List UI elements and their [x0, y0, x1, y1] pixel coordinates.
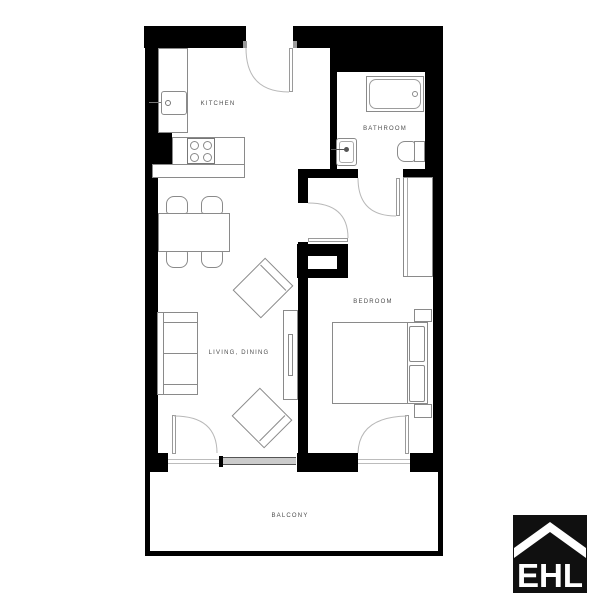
bedroom-balcony-door-arc [358, 416, 407, 453]
wall-bedroom-partition-upper [298, 178, 308, 203]
room-label-bedroom: BEDROOM [353, 299, 392, 305]
pillow [409, 326, 425, 362]
kitchen-counter-front [152, 164, 245, 178]
ehl-logo: EHL [513, 515, 587, 593]
entry-door-arc [246, 48, 289, 92]
bathroom-door-arc [358, 178, 396, 216]
bedroom-door-leaf [308, 238, 348, 242]
nightstand [414, 404, 432, 418]
bathroom-sink-basin [339, 141, 354, 163]
wall-right-lower [433, 173, 443, 472]
wall-right-upper [425, 26, 443, 173]
bedroom-balcony-door-leaf [405, 415, 409, 454]
room-label-kitchen: KITCHEN [201, 101, 236, 107]
entry-jamb-cap [243, 41, 247, 48]
wall-left [145, 26, 158, 472]
door-threshold [358, 459, 410, 460]
room-label-balcony: BALCONY [271, 513, 308, 519]
wall-bottom-middle [297, 453, 358, 472]
floor-plan: KITCHEN BATHROOM BEDROOM LIVING, DINING … [0, 0, 600, 600]
bathroom-faucet-icon [344, 147, 349, 152]
balcony-railing-right [438, 472, 443, 556]
duct-shaft-inner [308, 256, 337, 269]
pillow [409, 365, 425, 402]
wall-bottom-right [410, 453, 443, 472]
kitchen-faucet-icon [149, 102, 161, 103]
window-frame-line [222, 464, 296, 465]
entry-door-leaf [289, 48, 293, 92]
wall-top-left [144, 26, 246, 48]
bathroom-door-leaf [396, 178, 400, 216]
tv-sideboard-inner [288, 334, 293, 376]
door-threshold [358, 463, 410, 464]
entry-jamb-cap [293, 41, 297, 48]
dining-chair [201, 250, 223, 268]
door-threshold [168, 459, 220, 460]
kitchen-faucet-icon [165, 100, 171, 106]
nightstand [414, 309, 432, 322]
room-label-bathroom: BATHROOM [363, 126, 407, 132]
armchair-backrest [259, 415, 289, 445]
bed-headboard-line [407, 323, 408, 403]
stove-burner-icon [190, 141, 199, 150]
living-balcony-door-leaf [172, 415, 176, 454]
window-post [219, 456, 223, 467]
sofa-armrest-line [164, 322, 198, 323]
dining-table [158, 213, 230, 252]
dining-chair [166, 196, 188, 214]
window-frame-line [222, 457, 296, 458]
toilet-tank [414, 141, 425, 162]
wall-hall-bottom [298, 169, 358, 178]
dining-chair [201, 196, 223, 214]
wardrobe-door-line [407, 178, 408, 276]
armchair-backrest [260, 260, 290, 290]
door-threshold [168, 463, 220, 464]
bedroom-door-arc [308, 203, 348, 238]
living-balcony-door-arc [174, 416, 217, 453]
logo-text: EHL [513, 563, 587, 589]
toilet-bowl [397, 141, 415, 162]
room-label-living-dining: LIVING, DINING [209, 350, 270, 356]
stove-burner-icon [203, 141, 212, 150]
balcony-railing-bottom [145, 551, 443, 556]
stove-burner-icon [190, 153, 199, 162]
sofa-armrest-line [164, 384, 198, 385]
sofa-cushion-line [164, 353, 198, 354]
bathtub-drain-icon [412, 91, 418, 97]
dining-chair [166, 250, 188, 268]
stove-burner-icon [203, 153, 212, 162]
wall-bottom-left [145, 453, 168, 472]
balcony-railing-left [145, 472, 150, 556]
